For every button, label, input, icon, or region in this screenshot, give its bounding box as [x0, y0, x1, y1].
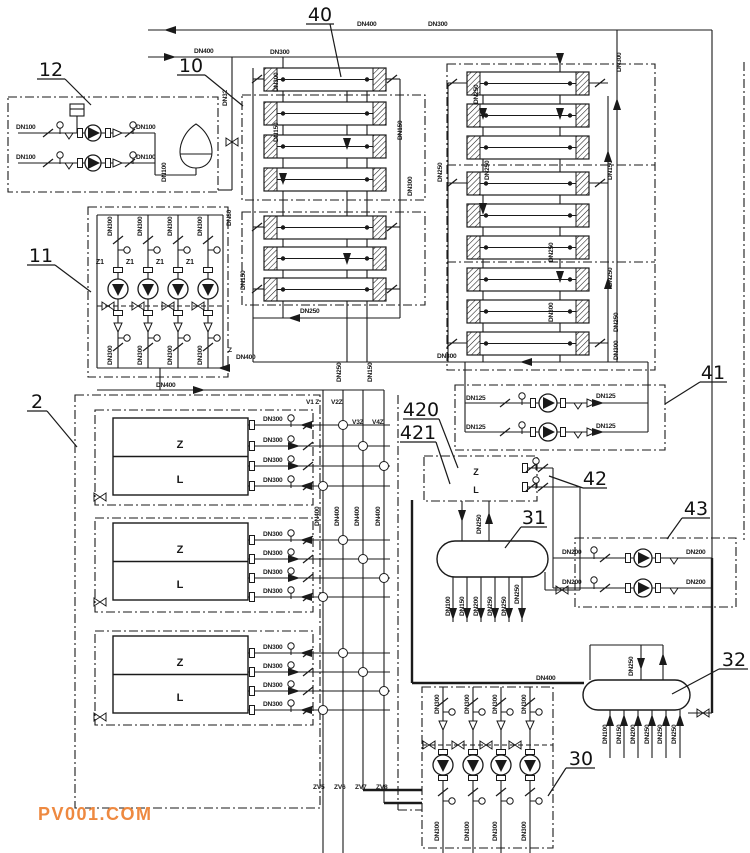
pipe-size-label: DN150 [397, 120, 404, 140]
check-valve-icon [174, 323, 182, 332]
instrument-icon [530, 798, 542, 804]
pump-icon [634, 549, 652, 567]
pipe-size-label: DN300 [263, 644, 283, 651]
flex-connector [250, 536, 255, 545]
pipe-size-label: DN150 [616, 724, 623, 744]
pipe-size-label: DN250 [336, 362, 343, 382]
pipe-size-label: DN150 [273, 122, 280, 142]
flex-connector [497, 776, 506, 781]
pipe-size-label: DN300 [464, 821, 471, 841]
strainer-icon [65, 133, 73, 139]
heat-exchanger [467, 300, 589, 323]
heat-exchanger [264, 247, 386, 270]
pipe-junction [339, 649, 348, 658]
heat-exchanger [264, 68, 386, 91]
pipe-size-label: DN250 [476, 514, 483, 534]
pipe-size-label: DN300 [137, 216, 144, 236]
callout-number: 30 [569, 748, 593, 770]
flex-connector [439, 776, 448, 781]
check-valve-icon [113, 129, 122, 137]
callout-number: 31 [522, 507, 546, 529]
pipe-size-label: DN300 [464, 694, 471, 714]
pipe-size-label: DN200 [686, 549, 706, 556]
check-valve-icon [439, 721, 447, 730]
flow-arrow [300, 706, 312, 714]
pump-icon [433, 755, 453, 775]
flow-arrow [288, 442, 300, 450]
pipe-junction [380, 574, 389, 583]
instrument-icon [443, 709, 455, 715]
gate-valve-icon [102, 302, 114, 310]
flex-connector [250, 668, 255, 677]
flow-arrow [288, 314, 300, 322]
pipe-size-label: DN400 [236, 354, 256, 361]
check-valve-icon [144, 323, 152, 332]
gate-valve-icon [94, 713, 106, 721]
flex-connector [497, 750, 506, 755]
pipe-size-label: DN300 [492, 694, 499, 714]
equipment-tag: Z [473, 467, 479, 477]
pipe-size-label: DN250 [514, 584, 521, 604]
flex-connector [250, 482, 255, 491]
chiller-plant-piping-diagram: DN400DN300DN400DN300DN300DN300DN150DN150… [0, 0, 750, 853]
flow-arrow [300, 593, 312, 601]
heat-exchanger [264, 135, 386, 158]
instrument-icon [148, 335, 160, 341]
instrument-icon [178, 335, 190, 341]
flex-connector [250, 706, 255, 715]
flow-arrow [620, 714, 628, 726]
pump-icon [539, 423, 557, 441]
pipe-size-label: DN300 [521, 694, 528, 714]
strainer-icon [574, 432, 582, 438]
callout-12: 12 [37, 59, 91, 105]
pipe-size-label: DN300 [521, 821, 528, 841]
pipe-size-label: DN250 [657, 724, 664, 744]
pipe-size-label: DN200 [630, 724, 637, 744]
callout-number: 12 [39, 59, 63, 81]
flow-arrow [606, 714, 614, 726]
pipe-junction [359, 555, 368, 564]
pipe-size-label: DN300 [107, 216, 114, 236]
pipe-size-label: DN250 [671, 724, 678, 744]
flow-arrow [458, 510, 466, 522]
pipe-size-label: V2Z [331, 399, 343, 406]
flow-arrow [164, 26, 176, 34]
pipe-size-label: DN125 [466, 395, 486, 402]
callout-43: 43 [667, 498, 710, 539]
instrument-icon [57, 152, 63, 164]
flow-arrow [676, 714, 684, 726]
flex-connector [78, 129, 83, 138]
flex-connector [114, 268, 123, 273]
pipe-size-label: DN300 [263, 457, 283, 464]
flow-arrow [485, 512, 493, 524]
flow-arrow [300, 649, 312, 657]
flow-arrow [288, 668, 300, 676]
pipe-size-label: DN300 [492, 821, 499, 841]
pipe-size-label: Z [228, 347, 232, 354]
pipe-size-label: V1 Z [306, 399, 319, 406]
equipment-tag: Z [177, 657, 184, 669]
equipment-tag: Z [177, 439, 184, 451]
pipe-size-label: DN300 [434, 821, 441, 841]
pipe-size-label: DN300 [434, 694, 441, 714]
flex-connector [144, 268, 153, 273]
pipe-size-label: DN125 [596, 393, 616, 400]
pipe-size-label: DN80 [226, 209, 233, 226]
pipe-size-label: DN100 [16, 154, 36, 161]
flow-arrow [662, 714, 670, 726]
equipment-tag: L [177, 692, 184, 704]
instrument-icon [178, 247, 190, 253]
flex-connector [526, 776, 535, 781]
pipe-size-label: DN400 [357, 21, 377, 28]
flow-arrow [648, 714, 656, 726]
pipe-size-label: DN300 [263, 477, 283, 484]
equipment-tag: Z1 [156, 259, 164, 266]
pipe-size-label: ZV7 [355, 784, 367, 791]
flex-connector [250, 462, 255, 471]
pipe-size-label: DN300 [273, 72, 280, 92]
equipment-tag: L [473, 485, 479, 495]
pump-icon [168, 279, 188, 299]
callout-number: 11 [29, 245, 53, 267]
flow-arrow [300, 482, 312, 490]
pipe-size-label: DN300 [407, 176, 414, 196]
flex-connector [114, 311, 123, 316]
pipe-size-label: DN300 [263, 588, 283, 595]
flex-connector [174, 311, 183, 316]
pipe-size-label: DN300 [107, 345, 114, 365]
pipe-size-label: DN400 [156, 382, 176, 389]
flow-arrow [613, 98, 621, 110]
heat-exchanger [467, 268, 589, 291]
callout-40: 40 [306, 4, 341, 77]
pipe-size-label: DN300 [263, 663, 283, 670]
generated-components [43, 26, 709, 804]
pump-icon [85, 125, 101, 141]
pipe-size-label: DN150 [367, 362, 374, 382]
pipe-size-label: DN150 [459, 596, 466, 616]
pipe-size-label: ZV8 [376, 784, 388, 791]
pipe-size-label: DN250 [487, 596, 494, 616]
callout-11: 11 [27, 245, 91, 292]
callout-30: 30 [548, 748, 595, 796]
flex-connector [531, 428, 536, 437]
strainer-icon [670, 588, 678, 594]
instrument-icon [208, 335, 220, 341]
check-valve-icon [526, 721, 534, 730]
pipe-size-label: DN300 [263, 550, 283, 557]
instrument-icon [530, 709, 542, 715]
pump-icon [463, 755, 483, 775]
pipe-size-label: ZV6 [334, 784, 346, 791]
pipe-size-label: DN150 [607, 160, 614, 180]
flex-connector [626, 584, 631, 593]
instrument-icon [57, 122, 63, 134]
flex-connector [561, 399, 566, 408]
pipe-junction [380, 687, 389, 696]
pipe-junction [339, 536, 348, 545]
pipe-size-label: DN250 [484, 160, 491, 180]
flow-arrow [288, 555, 300, 563]
flex-connector [144, 311, 153, 316]
pipe-size-label: DN300 [613, 340, 620, 360]
flex-connector [250, 574, 255, 583]
pipe-size-label: DN250 [613, 312, 620, 332]
pipe-size-label: DN300 [548, 302, 555, 322]
schematic-page: DN400DN300DN400DN300DN300DN300DN150DN150… [0, 0, 750, 853]
pipe-junction [339, 421, 348, 430]
flex-connector [561, 428, 566, 437]
callout-number: 2 [31, 391, 43, 413]
pipe-size-label: DN250 [548, 242, 555, 262]
pipe-size-label: DN300 [263, 531, 283, 538]
check-valve-icon [204, 323, 212, 332]
flex-connector [250, 442, 255, 451]
heat-exchanger [264, 278, 386, 301]
pump-icon [520, 755, 540, 775]
flex-connector [174, 268, 183, 273]
pipe-size-label: DN150 [240, 270, 247, 290]
flex-connector [626, 554, 631, 563]
pump-icon [634, 579, 652, 597]
flex-connector [204, 311, 213, 316]
pump-icon [491, 755, 511, 775]
instrument-icon [501, 798, 513, 804]
watermark: PV001.COM [38, 804, 153, 825]
pipe-size-label: DN250 [300, 308, 320, 315]
flex-connector [469, 776, 478, 781]
pipe-junction [319, 593, 328, 602]
callout-number: 41 [701, 362, 725, 384]
pipe-junction [359, 668, 368, 677]
instrument-icon [208, 247, 220, 253]
collector-tank [583, 680, 690, 710]
pipe-size-label: DN100 [161, 162, 168, 182]
flow-arrow [218, 364, 230, 372]
pipe-size-label: DN300 [197, 216, 204, 236]
flex-connector [250, 555, 255, 564]
pipe-size-label: DN300 [437, 353, 457, 360]
heat-exchanger [264, 216, 386, 239]
pipe-size-label: DN200 [686, 579, 706, 586]
flow-arrow [300, 421, 312, 429]
check-valve-icon [114, 323, 122, 332]
flex-connector [106, 129, 111, 138]
flow-arrow [637, 658, 645, 670]
pipe-size-label: DN100 [136, 124, 156, 131]
pipe-size-label: DN250 [473, 84, 480, 104]
heat-exchanger [264, 102, 386, 125]
flow-arrow [520, 358, 532, 366]
pipe-size-label: DN300 [263, 682, 283, 689]
pipe-size-label: DN125 [466, 424, 486, 431]
flow-arrow [604, 150, 612, 162]
flow-arrow [193, 386, 205, 394]
equipment-tag: L [177, 474, 184, 486]
equipment-tag: Z [177, 544, 184, 556]
pipe-size-label: DN125 [596, 423, 616, 430]
gate-valve-icon [94, 493, 106, 501]
instrument-icon [501, 709, 513, 715]
check-valve-icon [497, 721, 505, 730]
pipe-size-label: ZV5 [313, 784, 325, 791]
pipe-size-label: DN400 [536, 675, 556, 682]
gate-valve-icon [94, 598, 106, 606]
equipment-tag: Z1 [126, 259, 134, 266]
pipe-size-label: V4Z [372, 419, 384, 426]
callout-2: 2 [27, 391, 77, 447]
pipe-size-label: DN100 [136, 154, 156, 161]
equipment-tag: Z1 [186, 259, 194, 266]
callout-10: 10 [177, 55, 243, 106]
flow-arrow [592, 399, 604, 407]
pipe-size-label: DN100 [602, 724, 609, 744]
flex-connector [250, 421, 255, 430]
pipe-size-label: DN300 [137, 345, 144, 365]
instrument-icon [591, 577, 597, 589]
pipe-junction [359, 442, 368, 451]
heat-exchanger [467, 136, 589, 159]
pipe-size-label: DN400 [354, 506, 361, 526]
pipe-size-label: DN250 [644, 724, 651, 744]
pump-icon [85, 155, 101, 171]
heat-exchanger [467, 236, 589, 259]
pipe-junction [319, 706, 328, 715]
pump-icon [108, 279, 128, 299]
pipe-size-label: DN250 [437, 162, 444, 182]
callout-number: 421 [400, 422, 436, 444]
strainer-icon [65, 163, 73, 169]
callout-41: 41 [665, 362, 727, 404]
pipe-size-label: DN300 [428, 21, 448, 28]
pipe-size-label: DN400 [375, 506, 382, 526]
pipe-size-label: DN300 [263, 437, 283, 444]
flow-arrow [300, 536, 312, 544]
pipe-size-label: DN200 [562, 549, 582, 556]
makeup-water-box-icon [70, 104, 84, 116]
flex-connector [439, 750, 448, 755]
callout-number: 420 [403, 399, 439, 421]
flex-connector [204, 268, 213, 273]
flex-connector [78, 159, 83, 168]
callout-number: 32 [722, 649, 746, 671]
pipe-size-label: DN100 [445, 596, 452, 616]
expansion-tank-icon [180, 124, 212, 168]
pipe-size-label: DN200 [562, 579, 582, 586]
pipe-size-label: DN400 [334, 506, 341, 526]
pipe-size-label: DN250 [628, 656, 635, 676]
instrument-icon [473, 798, 485, 804]
callout-number: 43 [684, 498, 708, 520]
pump-icon [138, 279, 158, 299]
flex-connector [469, 750, 478, 755]
pipe-size-label: DN300 [167, 216, 174, 236]
pipe-size-label: DN200 [473, 596, 480, 616]
instrument-icon [443, 798, 455, 804]
strainer-icon [670, 558, 678, 564]
collector-tank [437, 541, 548, 577]
pipe-size-label: DN300 [197, 345, 204, 365]
instrument-icon [591, 547, 597, 559]
heat-exchanger [467, 332, 589, 355]
flow-arrow [288, 462, 300, 470]
flow-arrow [288, 687, 300, 695]
instrument-icon [118, 335, 130, 341]
pipe-size-label: DN100 [16, 124, 36, 131]
flex-connector [656, 554, 661, 563]
instrument-icon [148, 247, 160, 253]
pipe-size-label: DN300 [616, 52, 623, 72]
flex-connector [656, 584, 661, 593]
heat-exchanger [467, 72, 589, 95]
flow-arrow [556, 53, 564, 65]
strainer-icon [574, 403, 582, 409]
pipe-size-label: DN300 [263, 416, 283, 423]
callout-421: 421 [400, 422, 450, 484]
pump-icon [198, 279, 218, 299]
flow-arrow [659, 653, 667, 665]
flex-connector [250, 593, 255, 602]
flex-connector [106, 159, 111, 168]
pipe-size-label: DN400 [194, 48, 214, 55]
flow-arrow [634, 714, 642, 726]
flow-arrow [164, 53, 176, 61]
callout-number: 10 [179, 55, 203, 77]
equipment-tag: Z1 [96, 259, 104, 266]
pipe-size-label: DN250 [501, 596, 508, 616]
pipe-junction [380, 462, 389, 471]
callout-number: 42 [583, 468, 607, 490]
pump-icon [539, 394, 557, 412]
pipe-size-label: DN300 [167, 345, 174, 365]
callout-number: 40 [308, 4, 332, 26]
pipe-size-label: DN250 [607, 267, 614, 287]
check-valve-icon [113, 159, 122, 167]
equipment-tag: L [177, 579, 184, 591]
heat-exchanger [467, 104, 589, 127]
flow-arrow [518, 608, 526, 620]
flex-connector [531, 399, 536, 408]
flow-arrow [288, 574, 300, 582]
pipe-size-label: V3Z [352, 419, 364, 426]
instrument-icon [473, 709, 485, 715]
flex-connector [250, 687, 255, 696]
pipe-size-label: DN400 [314, 506, 321, 526]
pipe-size-label: DN300 [263, 569, 283, 576]
pipe-size-label: DN300 [270, 49, 290, 56]
check-valve-icon [469, 721, 477, 730]
flex-connector [526, 750, 535, 755]
pipe-junction [319, 482, 328, 491]
pipe-size-label: DN300 [263, 701, 283, 708]
instrument-icon [118, 247, 130, 253]
flex-connector [250, 649, 255, 658]
